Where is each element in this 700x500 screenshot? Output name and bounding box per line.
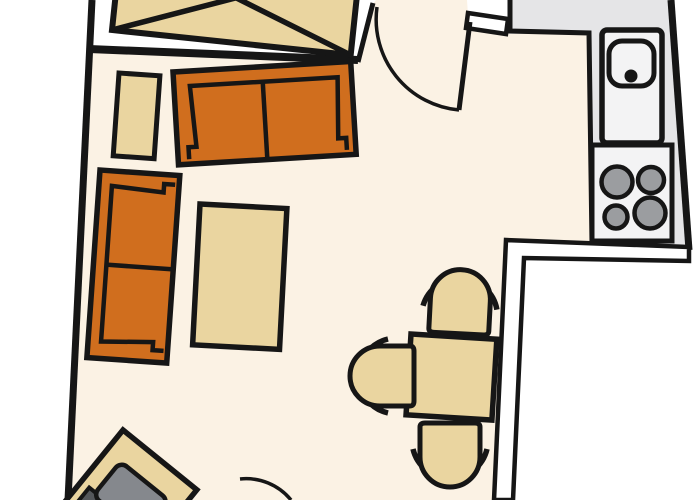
kitchen-sink [602, 30, 662, 143]
dining-table [406, 334, 497, 420]
coffee-table [193, 204, 287, 349]
coffee-table-top [193, 204, 287, 349]
burner-top-right [638, 167, 664, 193]
two-seat-sofa-left [87, 170, 180, 363]
burner-bottom-right [635, 198, 666, 229]
sink-drain-icon [625, 70, 638, 83]
chair-seat [350, 346, 414, 406]
floor-plan [0, 0, 700, 500]
stove-four-burners [592, 145, 672, 241]
chair-seat [420, 423, 480, 487]
burner-top-left [602, 167, 633, 198]
side-table-top [113, 73, 160, 159]
two-seat-sofa-top [173, 61, 356, 164]
chair-seat [429, 268, 492, 335]
side-table [113, 73, 160, 159]
floor-plan-canvas [0, 0, 700, 500]
burner-bottom-left [605, 206, 628, 229]
dining-table-top [406, 334, 497, 420]
